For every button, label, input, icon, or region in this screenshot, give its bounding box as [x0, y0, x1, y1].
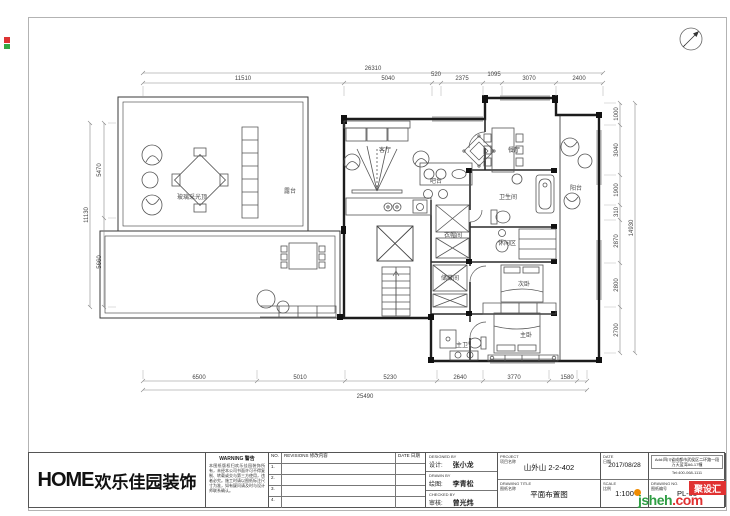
room-label: 玻璃采光顶 — [177, 193, 207, 201]
checked-by-label: CHECKED BY — [429, 492, 494, 497]
revisions-table: NO. REVISIONS 修改内容 DATE 日期 1. 2. 3. 4. — [269, 453, 426, 507]
room-label: 休闲区 — [498, 239, 516, 247]
revisions-no-header: NO. — [269, 453, 282, 463]
company-logo: HOME欢乐佳园装饰 — [29, 453, 206, 507]
warning-title: WARNING 警告 — [209, 455, 265, 462]
entry-floor-medallion — [463, 135, 495, 167]
date-cell: DATE日期 2017/08/28 — [601, 453, 648, 480]
kitchen-island — [420, 163, 472, 199]
checked-by-cn: 审核: — [429, 501, 443, 507]
svg-text:2640: 2640 — [453, 375, 467, 381]
svg-text:310: 310 — [614, 206, 620, 217]
bedroom2-furniture — [483, 265, 556, 314]
jsheh-watermark: jsheh.com 聚设汇 — [630, 481, 730, 513]
svg-text:5470: 5470 — [97, 163, 103, 177]
terrace-walls — [100, 97, 340, 318]
main-walls — [344, 98, 599, 361]
revision-row-number: 1. — [269, 464, 282, 474]
designed-by-cn: 设计: — [429, 463, 443, 469]
svg-text:2400: 2400 — [572, 76, 586, 82]
drawn-by-cn: 绘图: — [429, 482, 443, 488]
svg-text:5660: 5660 — [97, 255, 103, 269]
terrace-furniture — [142, 127, 258, 218]
svg-text:1900: 1900 — [614, 183, 620, 197]
sunroom-furniture — [257, 243, 336, 317]
staircase — [382, 267, 410, 316]
room-label: 客厅 — [379, 146, 391, 154]
title-block: HOME欢乐佳园装饰 WARNING 警告 本图纸版权归欢乐佳园装饰所有，未经本… — [28, 452, 725, 508]
drawing-sheet: 玻璃采光顶 露台 客厅 吧台 餐厅 卫生间 阳台 休闲区 衣帽间 储藏间 次卧 … — [0, 0, 730, 516]
designer-name: 张小龙 — [453, 462, 474, 469]
warning-block: WARNING 警告 本图纸版权归欢乐佳园装饰所有，未经本公司书面许可不得复制、… — [206, 453, 269, 507]
svg-text:11510: 11510 — [235, 76, 252, 82]
kitchen-counter — [346, 198, 431, 215]
watermark-site: jsheh — [638, 492, 672, 508]
dimension-text: 26310 11510 5040 520 2375 1095 3070 2400… — [84, 66, 635, 400]
checker-name: 曾光炜 — [453, 500, 474, 507]
svg-text:3770: 3770 — [507, 375, 521, 381]
warning-body: 本图纸版权归欢乐佳园装饰所有，未经本公司书面许可不得复制、转载或交与第三方使用，… — [209, 463, 265, 493]
room-label: 主卧 — [520, 331, 532, 339]
svg-text:2700: 2700 — [614, 323, 620, 337]
room-label: 主卫 — [456, 341, 468, 349]
drawing-title-value: 平面布置图 — [498, 489, 600, 500]
svg-text:5010: 5010 — [293, 375, 307, 381]
north-compass-icon — [680, 28, 702, 50]
address-line2: 万天蓝湾A6-17幢 — [652, 462, 722, 467]
svg-text:6500: 6500 — [192, 375, 206, 381]
drawing-title-cell: DRAWING TITLE图纸名称 平面布置图 — [498, 480, 600, 509]
wardrobe-cabinets — [436, 205, 469, 258]
telephone: Tel:400-068-1111 — [649, 470, 725, 475]
revision-row-number: 2. — [269, 475, 282, 485]
svg-text:2375: 2375 — [455, 76, 469, 82]
living-room-furniture — [344, 121, 429, 193]
designed-by-label: DESIGNED BY — [429, 454, 494, 459]
logo-home-text: HOME — [38, 469, 94, 492]
svg-text:1000: 1000 — [614, 107, 620, 121]
watermark-badge: 聚设汇 — [689, 481, 726, 495]
revisions-date-header: DATE 日期 — [395, 453, 425, 463]
revisions-title-header: REVISIONS 修改内容 — [282, 453, 395, 463]
address-cell: Add:四川省成都市武侯区二环路一段 万天蓝湾A6-17幢 Tel:400-06… — [649, 453, 725, 480]
room-label: 卫生间 — [499, 193, 517, 201]
svg-text:5230: 5230 — [383, 375, 397, 381]
room-label: 餐厅 — [508, 146, 520, 154]
svg-text:520: 520 — [431, 72, 442, 78]
svg-text:2870: 2870 — [614, 234, 620, 248]
svg-text:3070: 3070 — [522, 76, 536, 82]
svg-text:11130: 11130 — [84, 206, 90, 222]
project-cell: PROJECT项目名称 山外山 2-2-402 — [498, 453, 600, 480]
svg-text:5040: 5040 — [381, 76, 395, 82]
project-column: PROJECT项目名称 山外山 2-2-402 DRAWING TITLE图纸名… — [498, 453, 601, 507]
room-label: 衣帽间 — [444, 231, 462, 239]
svg-text:14930: 14930 — [629, 219, 635, 236]
svg-text:25490: 25490 — [357, 394, 374, 400]
room-label: 阳台 — [570, 184, 582, 192]
svg-text:3040: 3040 — [614, 143, 620, 157]
project-value: 山外山 2-2-402 — [498, 462, 600, 473]
balcony-plants — [561, 138, 592, 209]
drafter-name: 李青松 — [453, 481, 474, 488]
room-label: 吧台 — [430, 177, 442, 185]
revision-row-number: 3. — [269, 486, 282, 496]
drawn-by-label: DRAWN BY — [429, 473, 494, 478]
date-value: 2017/08/28 — [601, 462, 648, 469]
room-label: 露台 — [284, 187, 296, 195]
revision-row-number: 4. — [269, 497, 282, 508]
svg-text:26310: 26310 — [365, 66, 382, 72]
elevator — [377, 226, 413, 261]
floor-plan-canvas: 玻璃采光顶 露台 客厅 吧台 餐厅 卫生间 阳台 休闲区 衣帽间 储藏间 次卧 … — [0, 0, 730, 452]
svg-text:1580: 1580 — [560, 375, 574, 381]
credits-block: DESIGNED BY 设计:张小龙 DRAWN BY 绘图:李青松 CHECK… — [426, 453, 498, 507]
svg-text:2800: 2800 — [614, 278, 620, 292]
room-label: 储藏间 — [441, 274, 459, 282]
room-label: 次卧 — [518, 280, 530, 288]
svg-text:1095: 1095 — [487, 72, 501, 78]
storage-cabinets — [433, 265, 467, 307]
windows — [432, 96, 601, 363]
logo-cn-text: 欢乐佳园装饰 — [95, 468, 197, 493]
